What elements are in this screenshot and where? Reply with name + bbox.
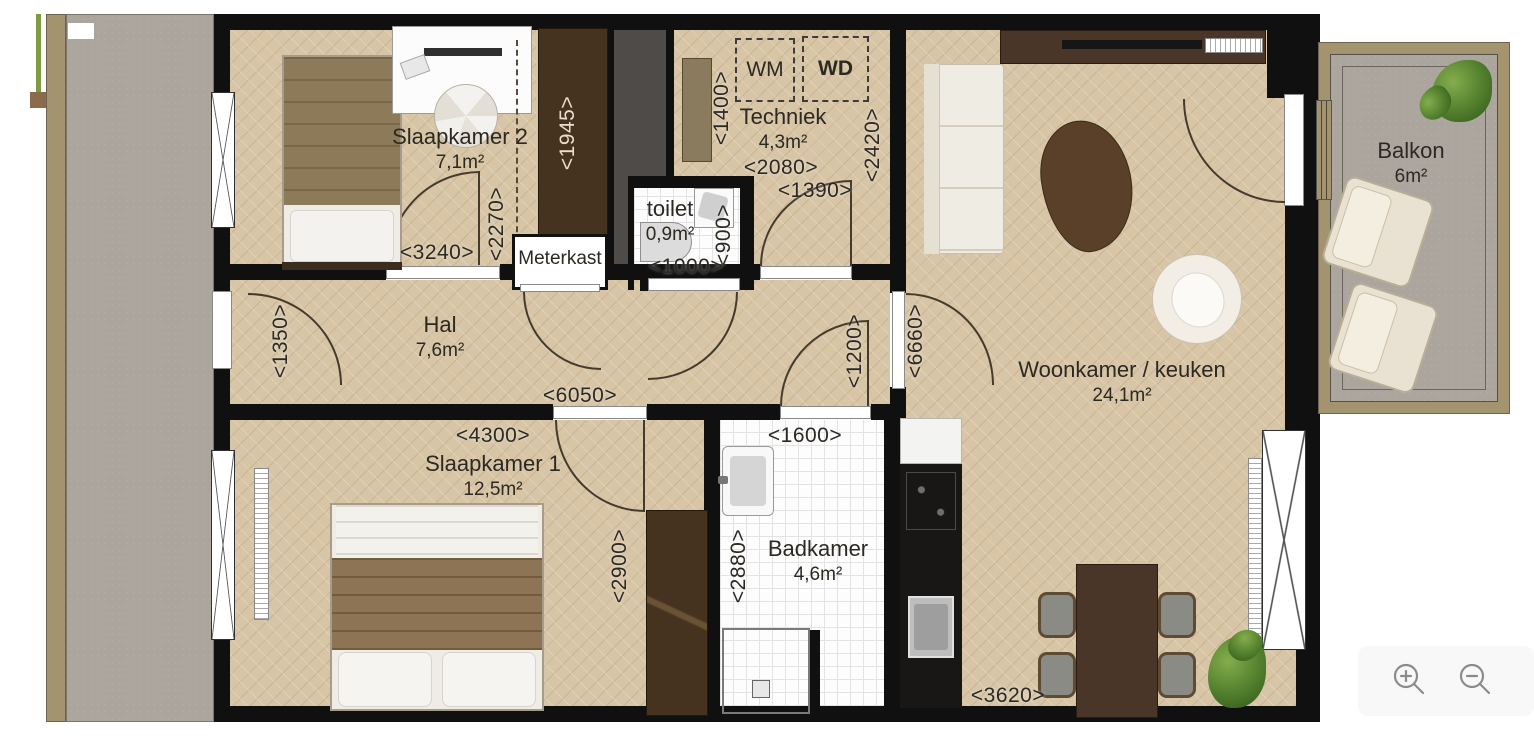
room-area: 4,3m²	[740, 132, 827, 154]
room-label-slaapkamer-2: Slaapkamer 2 7,1m²	[392, 124, 528, 174]
gallery-planter	[30, 92, 47, 108]
dim-2900: <2900>	[608, 529, 632, 603]
room-name: Badkamer	[768, 536, 868, 561]
dim-3620: <3620>	[971, 684, 1045, 708]
door-opening	[780, 406, 871, 419]
room-label-badkamer: Badkamer 4,6m²	[768, 536, 868, 586]
meterkast-door	[520, 284, 600, 292]
dining-table	[1076, 564, 1158, 718]
door-opening	[648, 278, 740, 291]
tv	[1062, 40, 1202, 49]
room-area: 7,6m²	[416, 340, 465, 362]
wall	[1285, 205, 1320, 432]
dim-2080: <2080>	[744, 156, 818, 180]
gallery-notch	[68, 23, 94, 39]
zoom-in-button[interactable]	[1390, 660, 1430, 700]
faucet	[718, 476, 728, 484]
gallery-edge	[46, 14, 66, 722]
room-name: Balkon	[1377, 138, 1444, 163]
dim-1400: <1400>	[710, 71, 734, 145]
wall	[630, 176, 752, 188]
dim-6660: <6660>	[904, 304, 928, 378]
wall	[214, 404, 553, 420]
double-bed-blanket	[332, 558, 542, 650]
dining-chair	[1038, 592, 1076, 638]
shaft	[614, 30, 666, 180]
magnifier-minus-icon	[1456, 688, 1496, 703]
dresser	[646, 510, 708, 716]
room-name: Woonkamer / keuken	[1018, 357, 1225, 382]
sofa-back	[924, 64, 940, 254]
dim-4300: <4300>	[456, 424, 530, 448]
window	[211, 92, 235, 228]
bathroom-sink-bowl	[730, 456, 766, 506]
room-area: 24,1m²	[1018, 385, 1225, 407]
wall	[214, 14, 1320, 30]
wall	[1296, 650, 1320, 722]
dim-1390: <1390>	[778, 179, 852, 203]
room-area: 6m²	[1377, 166, 1444, 188]
meterkast-label-box: Meterkast	[515, 237, 605, 281]
room-area: 0,9m²	[646, 224, 695, 246]
kitchen-sink-basin	[914, 604, 948, 650]
window	[211, 450, 235, 640]
radiator	[254, 468, 269, 620]
wall	[1304, 432, 1320, 650]
dim-1200: <1200>	[843, 314, 867, 388]
magnifier-plus-icon	[1390, 688, 1430, 703]
dryer-box: WD	[802, 36, 869, 102]
induction-hob	[906, 472, 956, 530]
wall	[890, 14, 906, 293]
room-label-balkon: Balkon 6m²	[1377, 138, 1444, 188]
door-leaf	[643, 420, 645, 512]
balcony-door	[1284, 94, 1304, 206]
shower	[722, 628, 810, 714]
wall	[871, 404, 884, 420]
dining-chair	[1158, 592, 1196, 638]
room-label-hal: Hal 7,6m²	[416, 312, 465, 362]
double-bed-sheet	[336, 505, 538, 565]
room-area: 7,1m²	[392, 152, 528, 174]
room-name: Slaapkamer 2	[392, 124, 528, 149]
desk-monitor	[424, 48, 502, 56]
dim-1945: <1945>	[556, 96, 580, 170]
wall	[852, 264, 890, 280]
radiator	[1248, 458, 1262, 648]
kitchen-appliance	[900, 418, 962, 464]
pillow	[290, 210, 394, 262]
dim-2420: <2420>	[861, 108, 885, 182]
wall	[640, 278, 648, 291]
zoom-controls-panel	[1358, 646, 1534, 716]
wall	[666, 30, 674, 180]
pillow	[442, 652, 536, 707]
room-name: Slaapkamer 1	[425, 451, 561, 476]
door-leaf	[478, 171, 480, 265]
entrance-door	[212, 291, 232, 369]
washing-machine-label: WM	[746, 58, 783, 82]
wall	[214, 226, 230, 294]
room-name: toilet	[646, 196, 695, 221]
radiator	[1205, 38, 1263, 53]
room-label-slaapkamer-1: Slaapkamer 1 12,5m²	[425, 451, 561, 501]
dim-2270: <2270>	[485, 187, 509, 261]
washing-machine-box: WM	[735, 38, 795, 102]
gallery-hedge	[36, 14, 41, 94]
wall	[740, 176, 754, 290]
balcony-pilaster	[1316, 100, 1332, 200]
door-opening	[386, 266, 500, 279]
room-label-woonkamer: Woonkamer / keuken 24,1m²	[1018, 357, 1225, 407]
wall	[628, 176, 634, 290]
shower-drain	[752, 680, 770, 698]
dim-1350: <1350>	[269, 304, 293, 378]
room-label-toilet: toilet 0,9m²	[646, 196, 695, 246]
room-name: Hal	[416, 312, 465, 337]
wall	[214, 14, 230, 94]
door-leaf	[867, 320, 869, 406]
room-area: 12,5m²	[425, 479, 561, 501]
dim-3240: <3240>	[400, 241, 474, 265]
single-bed-footboard	[282, 262, 402, 270]
floorplan-canvas: WM WD Meterkast Sla	[0, 0, 1534, 743]
dim-2880: <2880>	[727, 529, 751, 603]
meterkast-label: Meterkast	[518, 248, 601, 270]
wall	[720, 404, 780, 420]
room-area: 4,6m²	[768, 564, 868, 586]
dryer-label: WD	[818, 57, 853, 81]
wall	[214, 638, 230, 722]
single-bed-blanket	[284, 57, 400, 205]
door-opening	[760, 266, 852, 279]
dining-chair	[1158, 652, 1196, 698]
room-label-techniek: Techniek 4,3m²	[740, 104, 827, 154]
zoom-out-button[interactable]	[1456, 660, 1496, 700]
techniek-cabinet	[682, 58, 712, 162]
wall	[884, 404, 900, 722]
lounge-chair-cushion	[1330, 184, 1394, 269]
room-name: Techniek	[740, 104, 827, 129]
window	[1262, 430, 1306, 650]
dim-1000: <1000>	[649, 255, 723, 279]
dim-6050: <6050>	[543, 384, 617, 408]
gallery-walkway	[66, 14, 214, 722]
pillow	[338, 652, 432, 707]
dim-1600: <1600>	[768, 424, 842, 448]
